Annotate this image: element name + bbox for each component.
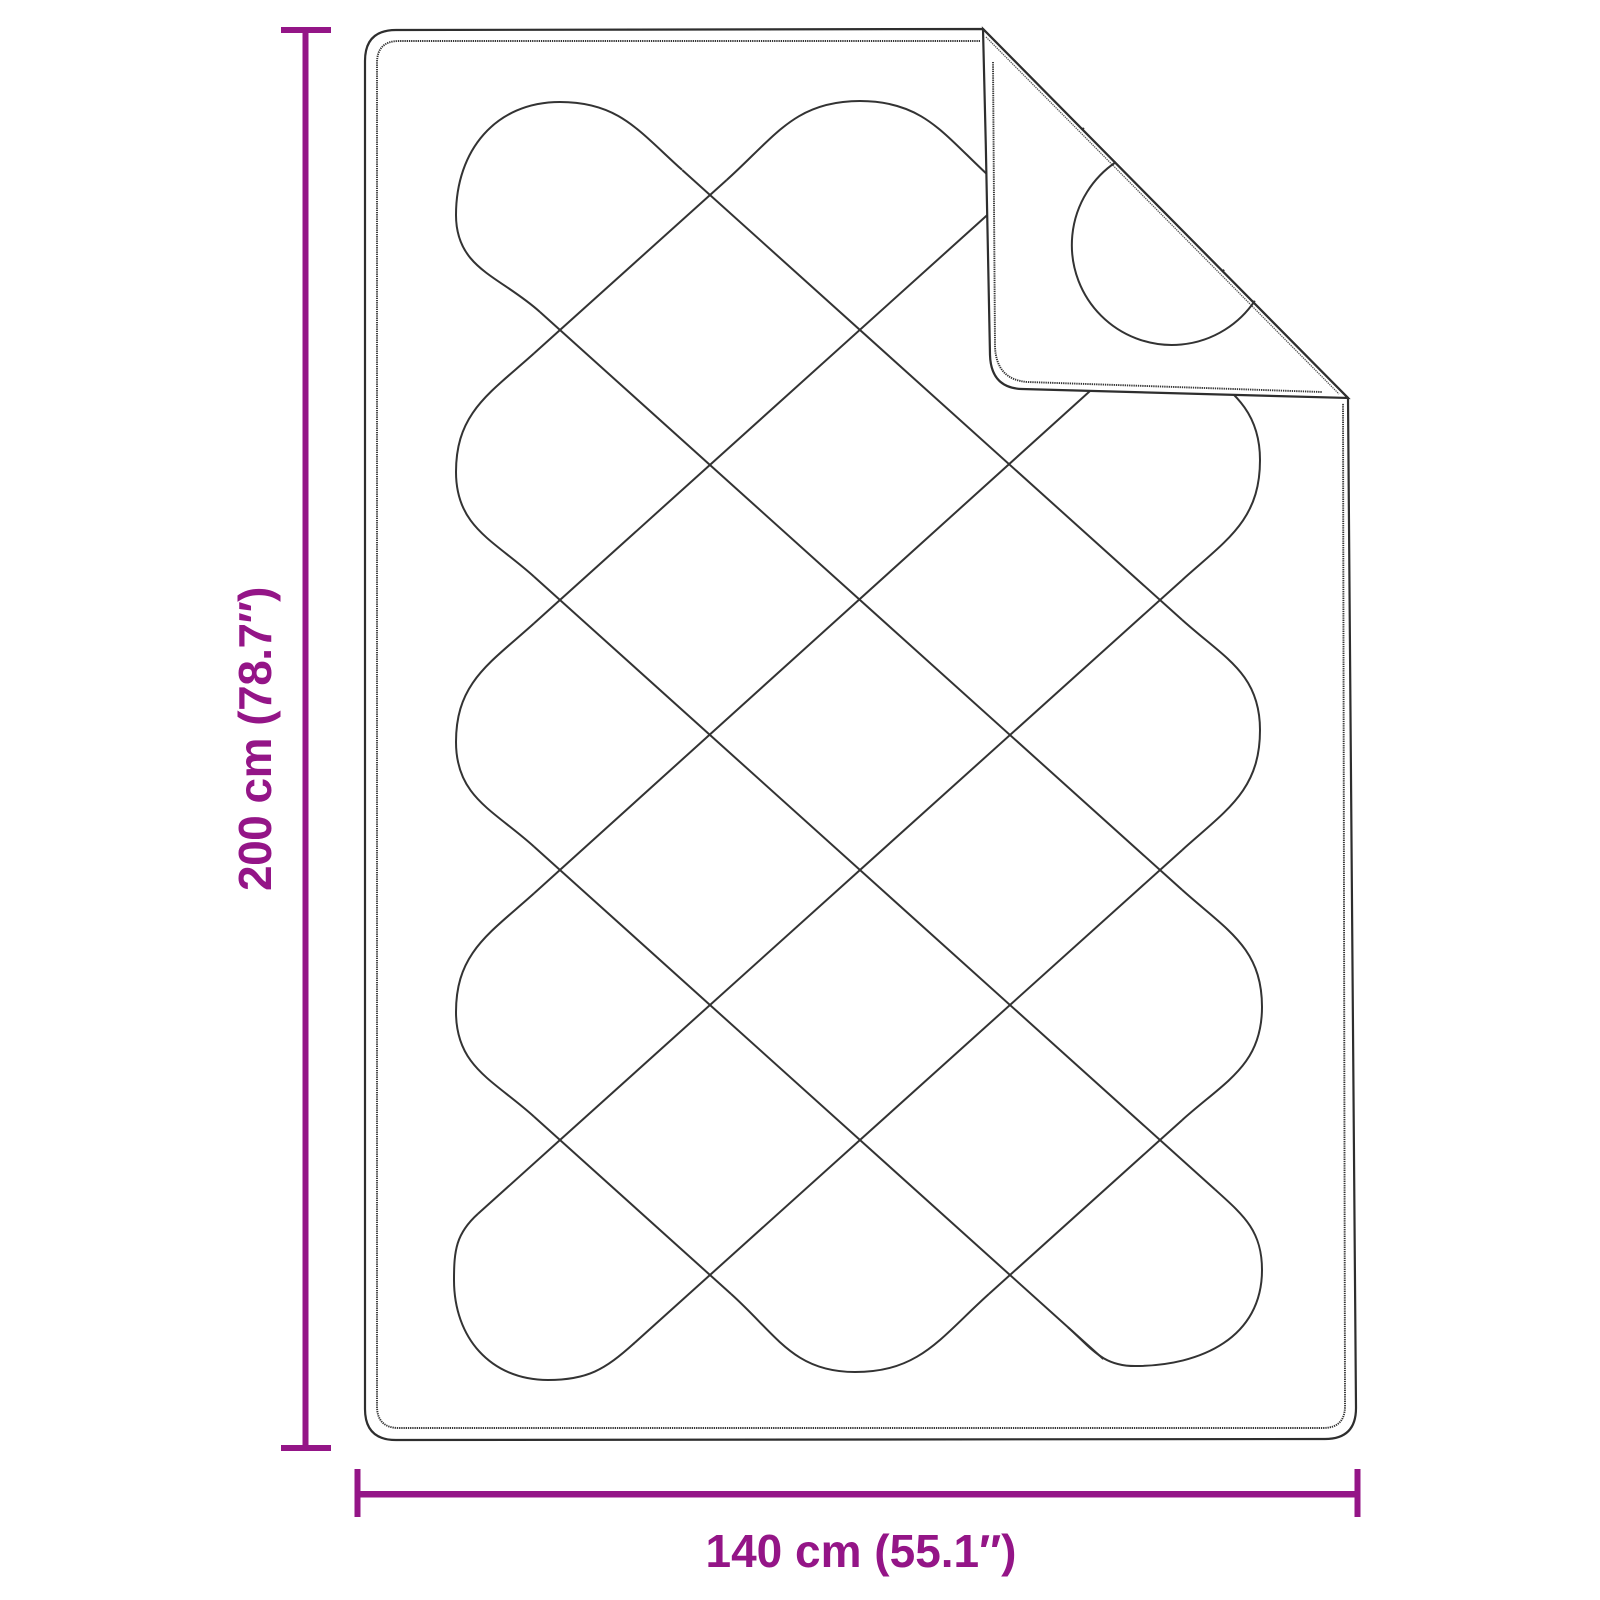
svg-text:140 cm (55.1″): 140 cm (55.1″) — [706, 1525, 1017, 1577]
svg-text:200 cm (78.7″): 200 cm (78.7″) — [229, 587, 281, 891]
